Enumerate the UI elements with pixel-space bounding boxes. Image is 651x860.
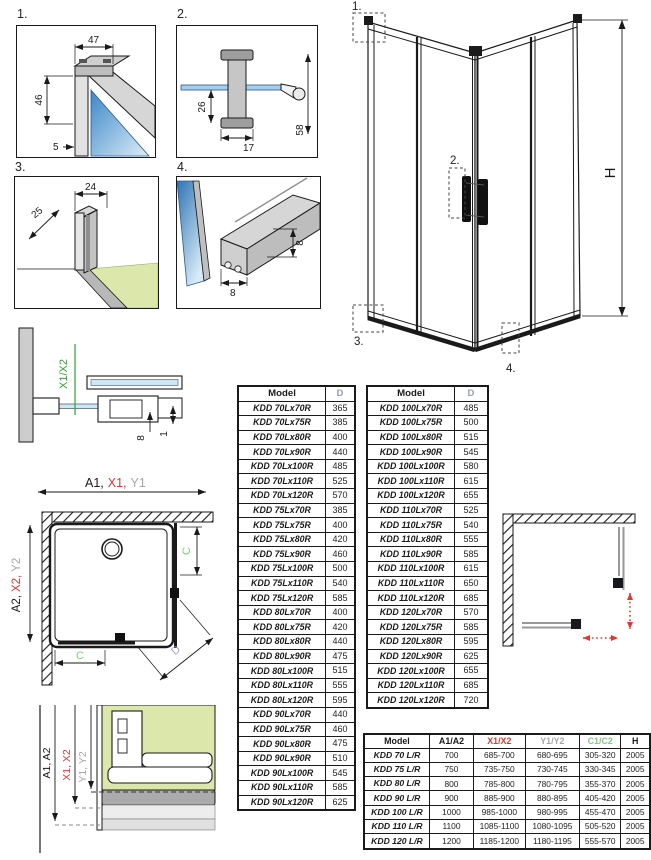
a1a2-cell: 1000 [429, 805, 473, 819]
side-dimension-label: A2,X2,Y2 [11, 558, 23, 613]
wall-profile [75, 206, 97, 273]
h-cell: 2005 [621, 819, 650, 833]
d-value-cell: 485 [326, 459, 356, 474]
header-row: Model D [238, 386, 355, 401]
y1y2-cell: 980-995 [525, 805, 579, 819]
detail-4-drawing: 8 8 [177, 177, 320, 308]
model-cell: KDD 120Lx75R [367, 620, 455, 635]
a1a2-cell: 1100 [429, 819, 473, 833]
dimension-26: 26 [197, 90, 211, 123]
d-value-cell: 585 [455, 547, 489, 562]
axis-label: X1/X2 [58, 359, 70, 389]
assembly-callout-1: 1. [352, 1, 362, 13]
detail-2-label: 2. [177, 7, 187, 21]
model-cell: KDD 80Lx75R [238, 620, 326, 635]
x1x2-cell: 785-800 [474, 777, 526, 791]
c1c2-cell: 555-570 [580, 834, 621, 849]
table-row: KDD 70Lx110R 525 [238, 474, 355, 489]
model-cell: KDD 70Lx110R [238, 474, 326, 489]
assembly-drawing: H 1. 2. 3. 4. [348, 0, 651, 378]
d-value-cell: 570 [326, 489, 356, 504]
table-row: KDD 80Lx100R 515 [238, 664, 355, 679]
table-row: KDD 70Lx70R 365 [238, 401, 355, 416]
spec-row: KDD 80 L/R 800 785-800 780-795 355-370 2… [364, 777, 650, 791]
svg-text:8: 8 [295, 240, 306, 246]
model-cell: KDD 110Lx110R [367, 576, 455, 591]
model-cell: KDD 100 L/R [364, 805, 429, 819]
x1x2-label: X1, X2 [61, 749, 73, 781]
svg-text:26: 26 [197, 101, 208, 113]
table-row: KDD 75Lx110R 540 [238, 576, 355, 591]
column-header-h: H [621, 734, 650, 748]
d-value-cell: 385 [326, 416, 356, 431]
model-cell: KDD 80Lx100R [238, 664, 326, 679]
top-rail-caps [364, 14, 582, 25]
model-cell: KDD 70Lx80R [238, 430, 326, 445]
header-row: Model D [367, 386, 488, 401]
dimension-c-right: C [180, 527, 202, 575]
table-row: KDD 100Lx70R 485 [367, 401, 488, 416]
d-label: D [169, 644, 183, 658]
model-cell: KDD 120 L/R [364, 834, 429, 849]
width-dimension: A1,X1,Y1 [38, 476, 206, 492]
model-cell: KDD 80Lx120R [238, 693, 326, 708]
d-value-cell: 420 [326, 532, 356, 547]
model-cell: KDD 100Lx120R [367, 489, 455, 504]
a1a2-cell: 1200 [429, 834, 473, 849]
shower-tray [50, 524, 173, 647]
d-value-cell: 650 [455, 576, 489, 591]
d-value-cell: 510 [326, 751, 356, 766]
table-row: KDD 70Lx80R 400 [238, 430, 355, 445]
table-row: KDD 120Lx100R 655 [367, 664, 488, 679]
x1x2-cell: 735-750 [474, 762, 526, 776]
wall-section-drawing: A1, A2 X1, X2 Y1, Y2 [38, 705, 218, 857]
model-cell: KDD 110Lx100R [367, 562, 455, 577]
bottom-door-handle [571, 619, 581, 629]
d-value-cell: 400 [326, 518, 356, 533]
h-cell: 2005 [621, 791, 650, 805]
model-cell: KDD 100Lx75R [367, 416, 455, 431]
section-detail-drawing: X1/X2 8 1 A1,X1,Y1 [10, 322, 220, 500]
x1x2-cell: 1085-1100 [474, 819, 526, 833]
c1c2-cell: 330-345 [580, 762, 621, 776]
table-row: KDD 75Lx80R 420 [238, 532, 355, 547]
table-row: KDD 120Lx80R 595 [367, 635, 488, 650]
y1y2-cell: 880-895 [525, 791, 579, 805]
model-cell: KDD 120Lx80R [367, 635, 455, 650]
svg-text:24: 24 [85, 182, 97, 193]
table-row: KDD 110Lx120R 685 [367, 591, 488, 606]
d-value-cell: 625 [455, 649, 489, 664]
table-row: KDD 70Lx100R 485 [238, 459, 355, 474]
d-table-right: Model D KDD 100Lx70R 485 KDD 100Lx75R 50… [366, 385, 489, 709]
column-header-y1y2: Y1/Y2 [525, 734, 579, 748]
d-value-cell: 595 [455, 635, 489, 650]
shower-enclosure-datasheet: { "colors": { "ink": "#1a1a1a", "red": "… [0, 0, 651, 860]
model-cell: KDD 120Lx120R [367, 693, 455, 708]
model-cell: KDD 90Lx110R [238, 780, 326, 795]
spec-row: KDD 100 L/R 1000 985-1000 980-995 455-47… [364, 805, 650, 819]
table-row: KDD 80Lx80R 440 [238, 635, 355, 650]
detail-4-box: 8 8 [176, 176, 321, 309]
y1y2-cell: 1080-1095 [525, 819, 579, 833]
header-row: Model A1/A2 X1/X2 Y1/Y2 C1/C2 H [364, 734, 650, 748]
assembly-callout-3: 3. [354, 336, 364, 348]
c1c2-cell: 505-520 [580, 819, 621, 833]
width-dimension-label: A1,X1,Y1 [85, 476, 146, 490]
model-cell: KDD 90Lx75R [238, 722, 326, 737]
model-cell: KDD 100Lx100R [367, 459, 455, 474]
table-row: KDD 100Lx100R 580 [367, 459, 488, 474]
a1a2-cell: 800 [429, 777, 473, 791]
svg-text:5: 5 [53, 142, 59, 153]
table-row: KDD 90Lx100R 545 [238, 766, 355, 781]
model-cell: KDD 110Lx75R [367, 518, 455, 533]
bottom-sliding-door [522, 619, 581, 629]
table-row: KDD 120Lx110R 685 [367, 678, 488, 693]
model-cell: KDD 90 L/R [364, 791, 429, 805]
table-row: KDD 100Lx110R 615 [367, 474, 488, 489]
wall-left-hatched [503, 514, 513, 646]
d-value-cell: 595 [326, 693, 356, 708]
model-cell: KDD 70Lx70R [238, 401, 326, 416]
y1y2-cell: 780-795 [525, 777, 579, 791]
svg-text:8: 8 [136, 435, 147, 441]
table-row: KDD 120Lx120R 720 [367, 693, 488, 708]
wall-bracket [33, 398, 59, 414]
table-row: KDD 80Lx70R 400 [238, 605, 355, 620]
d-value-cell: 460 [326, 547, 356, 562]
a1a2-cell: 700 [429, 748, 473, 762]
model-cell: KDD 70Lx90R [238, 445, 326, 460]
table-row: KDD 120Lx90R 625 [367, 649, 488, 664]
model-cell: KDD 90Lx120R [238, 795, 326, 810]
h-cell: 2005 [621, 805, 650, 819]
d-value-cell: 475 [326, 649, 356, 664]
d-value-cell: 585 [455, 620, 489, 635]
d-value-cell: 525 [326, 474, 356, 489]
wall-top-hatched [42, 512, 213, 522]
right-glass-wall [475, 20, 580, 350]
model-cell: KDD 75Lx110R [238, 576, 326, 591]
right-sliding-door [613, 527, 624, 590]
svg-text:25: 25 [30, 205, 46, 221]
model-cell: KDD 110 L/R [364, 819, 429, 833]
glass-run [33, 396, 182, 422]
spec-row: KDD 75 L/R 750 735-750 730-745 330-345 2… [364, 762, 650, 776]
model-cell: KDD 120Lx110R [367, 678, 455, 693]
d-value-cell: 720 [455, 693, 489, 708]
table-row: KDD 110Lx75R 540 [367, 518, 488, 533]
detail-1-label: 1. [17, 7, 27, 21]
model-cell: KDD 90Lx70R [238, 707, 326, 722]
d-value-cell: 685 [455, 591, 489, 606]
table-row: KDD 80Lx90R 475 [238, 649, 355, 664]
dimension-17: 17 [221, 129, 255, 154]
table-row: KDD 110Lx90R 585 [367, 547, 488, 562]
table-row: KDD 120Lx70R 570 [367, 605, 488, 620]
d-value-cell: 475 [326, 737, 356, 752]
table-row: KDD 70Lx120R 570 [238, 489, 355, 504]
model-cell: KDD 80Lx110R [238, 678, 326, 693]
table-row: KDD 75Lx100R 500 [238, 562, 355, 577]
table-row: KDD 75Lx90R 460 [238, 547, 355, 562]
y1y2-cell: 680-695 [525, 748, 579, 762]
d-value-cell: 555 [455, 532, 489, 547]
d-value-cell: 540 [326, 576, 356, 591]
a1a2-label: A1, A2 [41, 747, 53, 778]
table-row: KDD 90Lx80R 475 [238, 737, 355, 752]
model-cell: KDD 100Lx90R [367, 445, 455, 460]
d-value-cell: 585 [326, 780, 356, 795]
d-value-cell: 385 [326, 503, 356, 518]
c-bottom-label: C [76, 650, 84, 662]
x1x2-cell: 1185-1200 [474, 834, 526, 849]
height-label: H [602, 168, 619, 179]
d-value-cell: 570 [455, 605, 489, 620]
column-header-x1x2: X1/X2 [474, 734, 526, 748]
model-cell: KDD 110Lx80R [367, 532, 455, 547]
column-header-model: Model [367, 386, 455, 401]
x1x2-cell: 685-700 [474, 748, 526, 762]
dimension-25: 25 [29, 205, 59, 239]
y1y2-label: Y1, Y2 [77, 751, 89, 782]
d-value-cell: 515 [455, 430, 489, 445]
d-value-cell: 500 [455, 416, 489, 431]
model-cell: KDD 70Lx75R [238, 416, 326, 431]
h-cell: 2005 [621, 834, 650, 849]
spec-row: KDD 120 L/R 1200 1185-1200 1180-1195 555… [364, 834, 650, 849]
slide-direction-drawing [495, 512, 651, 648]
table-row: KDD 120Lx75R 585 [367, 620, 488, 635]
detail-3-box: 24 25 [14, 176, 159, 309]
model-cell: KDD 75Lx80R [238, 532, 326, 547]
column-header-c1c2: C1/C2 [580, 734, 621, 748]
y1y2-cell: 730-745 [525, 762, 579, 776]
table-row: KDD 70Lx90R 440 [238, 445, 355, 460]
h-cell: 2005 [621, 762, 650, 776]
d-value-cell: 485 [455, 401, 489, 416]
model-cell: KDD 90Lx100R [238, 766, 326, 781]
c1c2-cell: 455-470 [580, 805, 621, 819]
detail-2-drawing: 26 17 58 [177, 26, 317, 157]
column-header-d: D [455, 386, 489, 401]
d-value-cell: 420 [326, 620, 356, 635]
model-cell: KDD 75 L/R [364, 762, 429, 776]
dimension-46: 46 [34, 76, 73, 124]
d-value-cell: 685 [455, 678, 489, 693]
table-row: KDD 90Lx110R 585 [238, 780, 355, 795]
wall-top-hatched [503, 514, 635, 523]
wall-section [19, 328, 33, 442]
assembly-callout-4: 4. [506, 363, 516, 375]
height-dimension: H [581, 20, 628, 316]
model-cell: KDD 75Lx75R [238, 518, 326, 533]
model-cell: KDD 75Lx90R [238, 547, 326, 562]
d-value-cell: 555 [326, 678, 356, 693]
model-cell: KDD 100Lx80R [367, 430, 455, 445]
d-value-cell: 515 [326, 664, 356, 679]
a1a2-cell: 750 [429, 762, 473, 776]
d-value-cell: 625 [326, 795, 356, 810]
right-door-handle [613, 578, 623, 588]
c1c2-cell: 355-370 [580, 777, 621, 791]
model-cell: KDD 120Lx70R [367, 605, 455, 620]
assembly-callout-2: 2. [450, 155, 460, 167]
model-cell: KDD 80Lx90R [238, 649, 326, 664]
table-row: KDD 110Lx100R 615 [367, 562, 488, 577]
d-value-cell: 365 [326, 401, 356, 416]
model-cell: KDD 70Lx120R [238, 489, 326, 504]
table-row: KDD 75Lx70R 385 [238, 503, 355, 518]
column-header-model: Model [364, 734, 429, 748]
d-value-cell: 655 [455, 489, 489, 504]
table-row: KDD 100Lx80R 515 [367, 430, 488, 445]
table-row: KDD 100Lx90R 545 [367, 445, 488, 460]
svg-text:1: 1 [159, 431, 170, 437]
table-row: KDD 90Lx70R 440 [238, 707, 355, 722]
model-cell: KDD 110Lx70R [367, 503, 455, 518]
c1c2-cell: 405-420 [580, 791, 621, 805]
d-value-cell: 440 [326, 707, 356, 722]
d-value-cell: 525 [455, 503, 489, 518]
h-cell: 2005 [621, 777, 650, 791]
table-row: KDD 90Lx75R 460 [238, 722, 355, 737]
spec-row: KDD 110 L/R 1100 1085-1100 1080-1095 505… [364, 819, 650, 833]
d-value-cell: 500 [326, 562, 356, 577]
d-value-cell: 440 [326, 635, 356, 650]
glass-edge [97, 705, 102, 830]
table-row: KDD 90Lx120R 625 [238, 795, 355, 810]
model-cell: KDD 120Lx90R [367, 649, 455, 664]
column-header-model: Model [238, 386, 326, 401]
d-value-cell: 545 [455, 445, 489, 460]
d-value-cell: 460 [326, 722, 356, 737]
column-header-a1a2: A1/A2 [429, 734, 473, 748]
d-value-cell: 580 [455, 459, 489, 474]
detail-4-label: 4. [177, 160, 187, 174]
table-row: KDD 100Lx120R 655 [367, 489, 488, 504]
model-cell: KDD 90Lx90R [238, 751, 326, 766]
table-row: KDD 80Lx120R 595 [238, 693, 355, 708]
glass-pane [177, 181, 210, 286]
d-value-cell: 655 [455, 664, 489, 679]
model-cell: KDD 80 L/R [364, 777, 429, 791]
svg-text:46: 46 [34, 94, 45, 106]
plan-view-drawing: C C D A2,X2,Y2 [10, 505, 222, 700]
c-right-label: C [181, 547, 193, 555]
bottom-door-handle [115, 633, 125, 642]
band-light [102, 805, 215, 819]
column-header-d: D [326, 386, 356, 401]
d-value-cell: 615 [455, 474, 489, 489]
table-row: KDD 75Lx75R 400 [238, 518, 355, 533]
svg-text:58: 58 [295, 124, 306, 136]
hook-handle [281, 84, 305, 100]
model-cell: KDD 80Lx80R [238, 635, 326, 650]
model-cell: KDD 100Lx70R [367, 401, 455, 416]
table-row: KDD 110Lx70R 525 [367, 503, 488, 518]
detail-2-box: 26 17 58 [176, 25, 318, 158]
dimension-a2x2y2: A2,X2,Y2 [11, 525, 30, 642]
detail-3-drawing: 24 25 [15, 177, 158, 308]
table-row: KDD 90Lx90R 510 [238, 751, 355, 766]
spec-table: Model A1/A2 X1/X2 Y1/Y2 C1/C2 H KDD 70 L… [363, 733, 651, 850]
rail-profile [87, 376, 182, 389]
svg-text:17: 17 [243, 143, 255, 154]
d-value-cell: 615 [455, 562, 489, 577]
table-row: KDD 80Lx110R 555 [238, 678, 355, 693]
model-cell: KDD 70 L/R [364, 748, 429, 762]
model-cell: KDD 75Lx70R [238, 503, 326, 518]
detail-1-box: 47 46 5 [16, 25, 156, 158]
h-cell: 2005 [621, 748, 650, 762]
x1x2-cell: 985-1000 [474, 805, 526, 819]
table-row: KDD 110Lx80R 555 [367, 532, 488, 547]
left-glass-wall [368, 22, 475, 350]
svg-text:8: 8 [230, 288, 236, 299]
table-row: KDD 75Lx120R 585 [238, 591, 355, 606]
c1c2-cell: 305-320 [580, 748, 621, 762]
a1a2-cell: 900 [429, 791, 473, 805]
d-value-cell: 540 [455, 518, 489, 533]
glass-profile-isometric [75, 56, 155, 156]
model-cell: KDD 70Lx100R [238, 459, 326, 474]
d-value-cell: 400 [326, 605, 356, 620]
spec-row: KDD 70 L/R 700 685-700 680-695 305-320 2… [364, 748, 650, 762]
model-cell: KDD 75Lx120R [238, 591, 326, 606]
model-cell: KDD 80Lx70R [238, 605, 326, 620]
d-table-left: Model D KDD 70Lx70R 365 KDD 70Lx75R 385 … [237, 385, 356, 811]
d-value-cell: 440 [326, 445, 356, 460]
d-value-cell: 545 [326, 766, 356, 781]
d-value-cell: 400 [326, 430, 356, 445]
model-cell: KDD 100Lx110R [367, 474, 455, 489]
svg-text:47: 47 [88, 35, 100, 46]
dimension-c-bottom: C [55, 650, 105, 666]
spec-row: KDD 90 L/R 900 885-900 880-895 405-420 2… [364, 791, 650, 805]
table-row: KDD 70Lx75R 385 [238, 416, 355, 431]
model-cell: KDD 75Lx100R [238, 562, 326, 577]
dimension-5: 5 [53, 142, 74, 153]
d-value-cell: 585 [326, 591, 356, 606]
model-cell: KDD 90Lx80R [238, 737, 326, 752]
table-row: KDD 100Lx75R 500 [367, 416, 488, 431]
detail-1-drawing: 47 46 5 [17, 26, 155, 157]
table-row: KDD 80Lx75R 420 [238, 620, 355, 635]
right-door-handle [170, 588, 179, 598]
seal-profile [221, 178, 320, 275]
band-lighter [102, 819, 215, 830]
model-cell: KDD 110Lx120R [367, 591, 455, 606]
model-cell: KDD 120Lx100R [367, 664, 455, 679]
detail-3-label: 3. [15, 160, 25, 174]
y1y2-cell: 1180-1195 [525, 834, 579, 849]
x1x2-cell: 885-900 [474, 791, 526, 805]
table-row: KDD 110Lx110R 650 [367, 576, 488, 591]
model-cell: KDD 110Lx90R [367, 547, 455, 562]
